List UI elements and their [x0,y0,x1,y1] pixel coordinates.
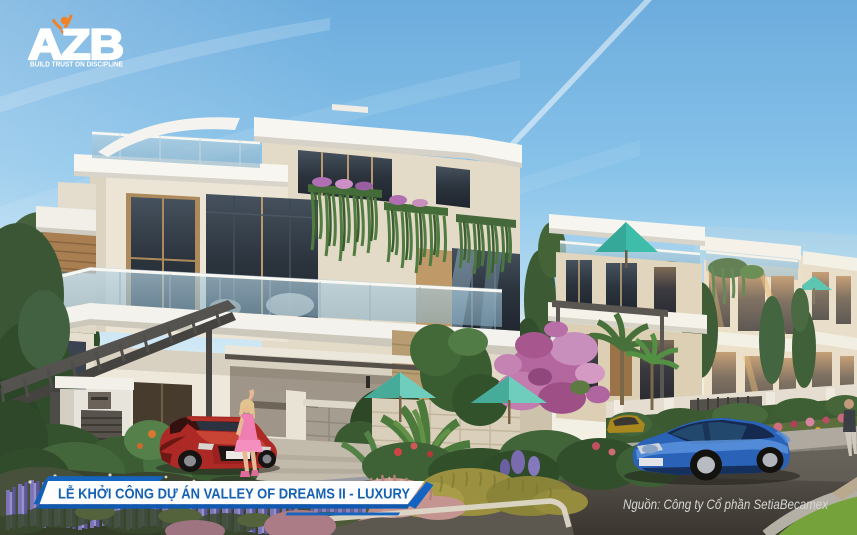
svg-text:BUILD TRUST ON DISCIPLINE: BUILD TRUST ON DISCIPLINE [30,60,123,69]
svg-text:LỄ KHỞI CÔNG DỰ ÁN VALLEY OF D: LỄ KHỞI CÔNG DỰ ÁN VALLEY OF DREAMS II -… [58,485,410,503]
svg-text:Nguồn: Công ty Cổ phần SetiaBe: Nguồn: Công ty Cổ phần SetiaBecamex [623,497,829,512]
